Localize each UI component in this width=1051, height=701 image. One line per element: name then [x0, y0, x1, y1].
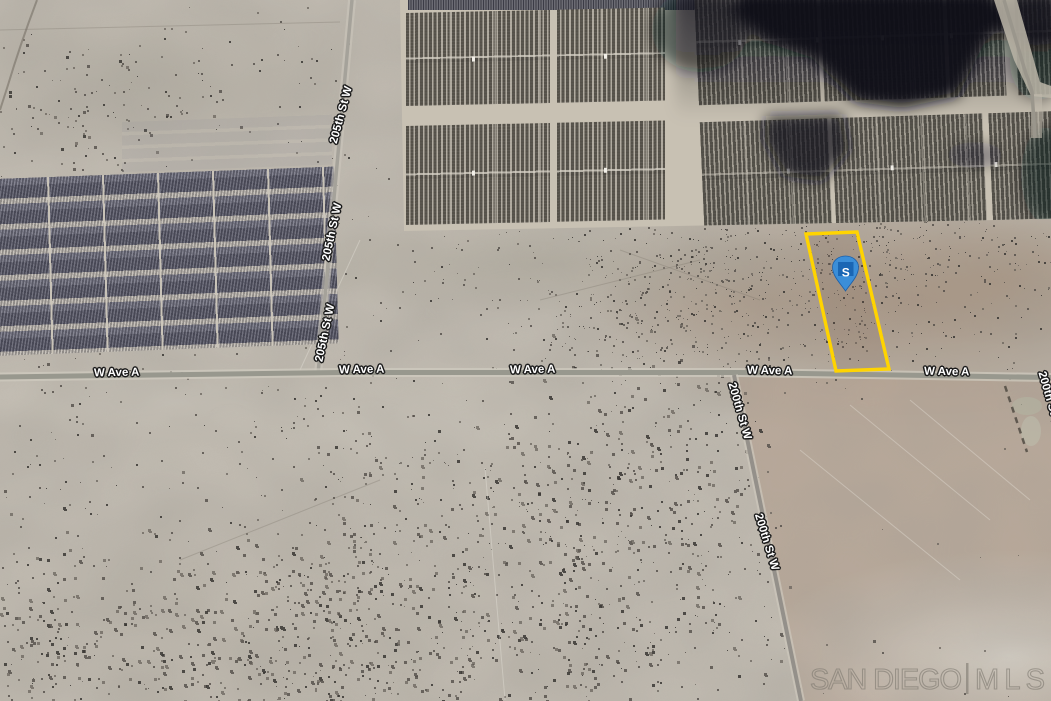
svg-text:SAN DIEGO: SAN DIEGO: [810, 664, 962, 696]
svg-text:MLS: MLS: [975, 664, 1045, 696]
